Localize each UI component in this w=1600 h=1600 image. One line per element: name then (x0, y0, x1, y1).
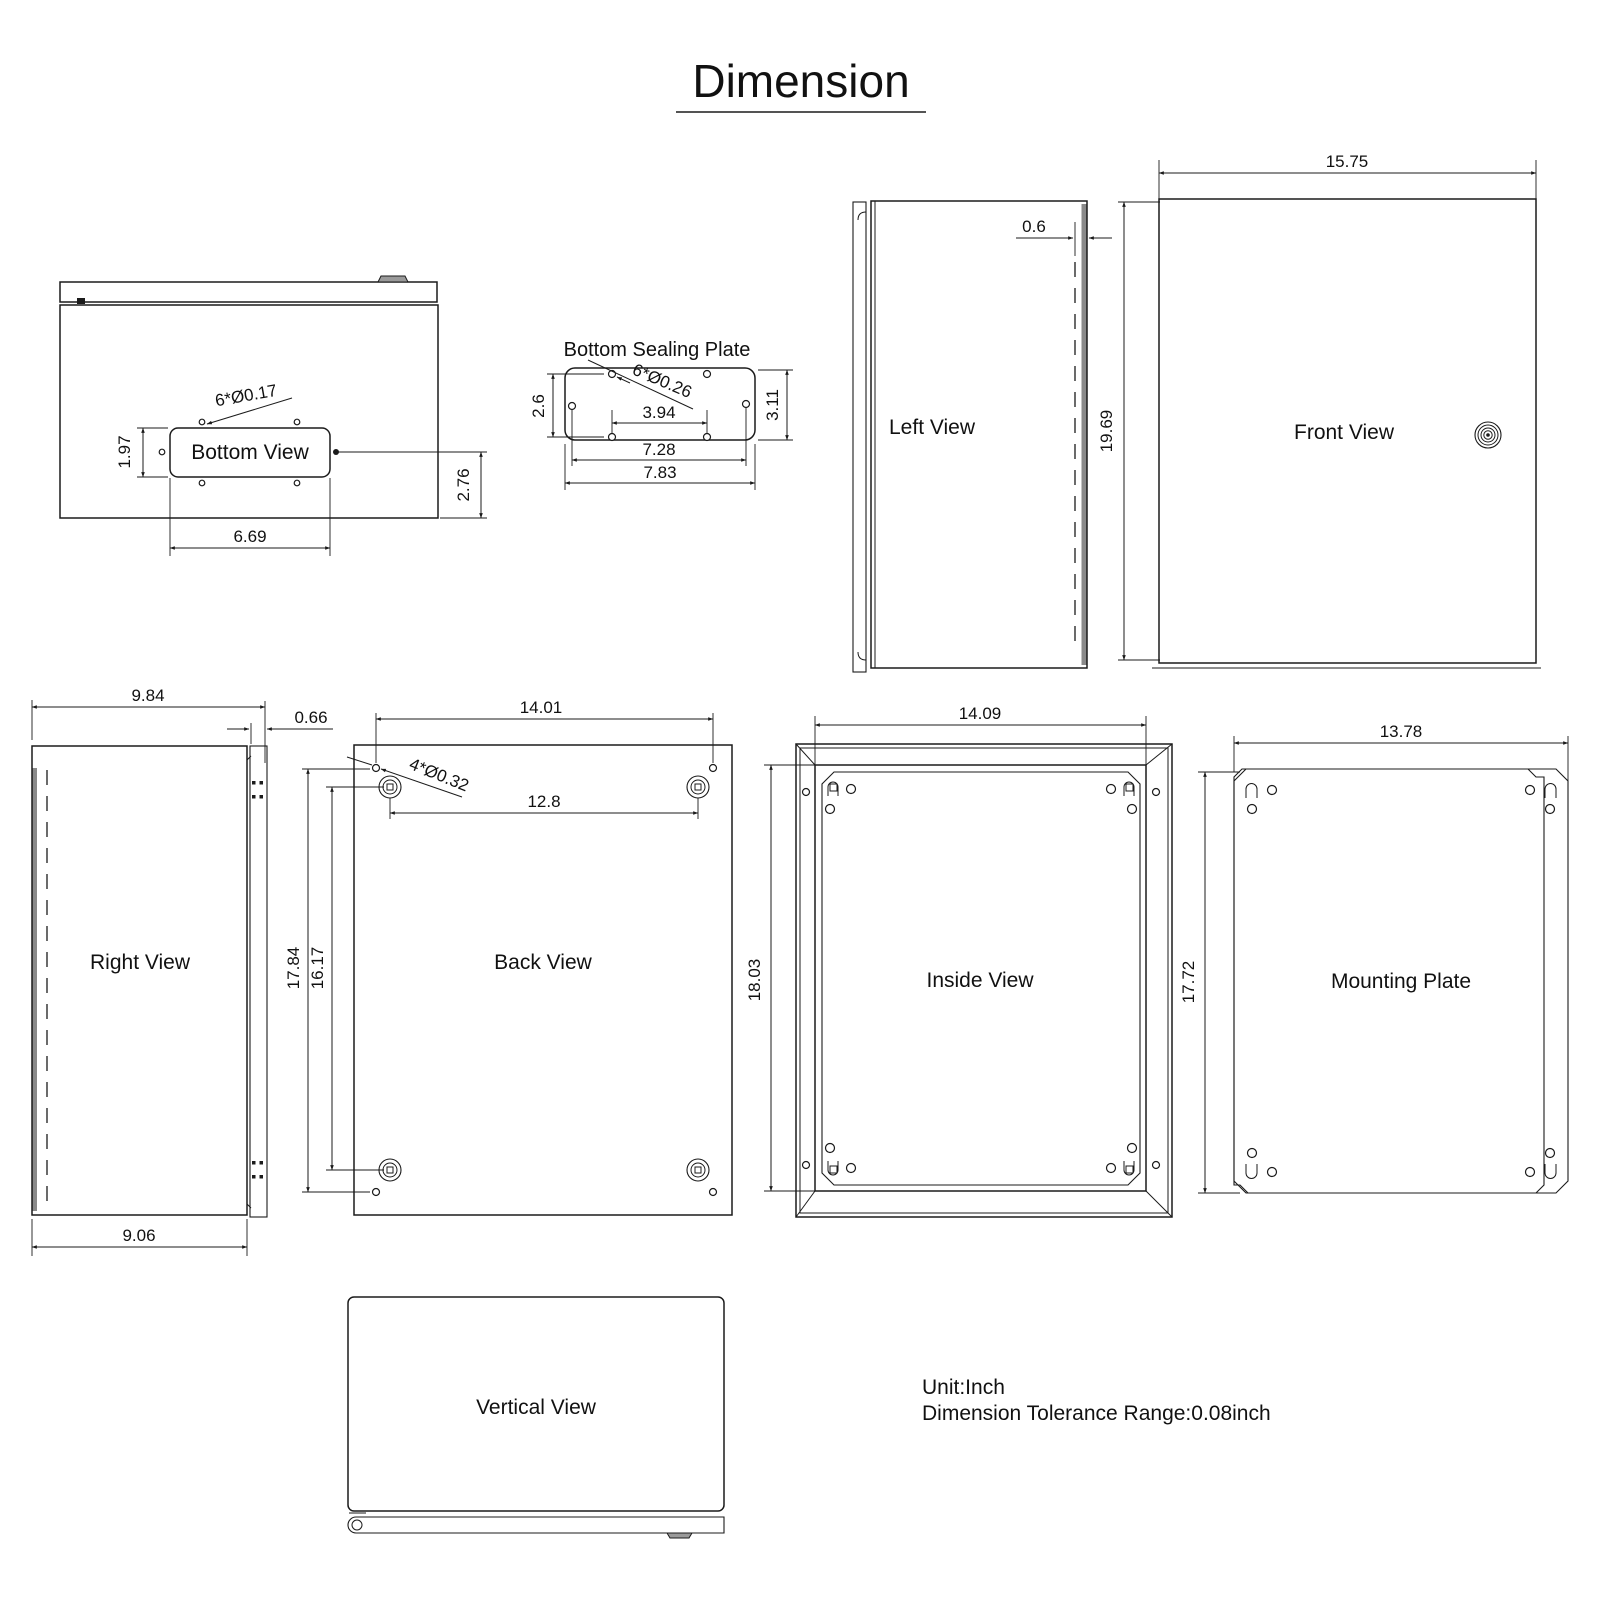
hinge-nub-icon (77, 298, 85, 304)
bottom-view-label: Bottom View (191, 441, 309, 464)
hole-callout-text: 6*Ø0.26 (630, 360, 695, 402)
dim-inner-hole-span: 3.94 (612, 403, 707, 433)
dim-body-depth: 9.06 (32, 1219, 247, 1256)
dim-hole-callout: 6*Ø0.17 (207, 381, 292, 424)
left-view: Left View 0.6 (853, 201, 1112, 672)
bottom-sealing-plate-view: Bottom Sealing Plate 6*Ø0.26 2.6 3.11 (529, 339, 793, 490)
hole (710, 1189, 717, 1196)
dim-text: 19.69 (1097, 410, 1116, 453)
hole (199, 419, 205, 425)
unit-note: Unit:Inch (922, 1376, 1005, 1399)
dim-text: 3.11 (763, 389, 782, 421)
dim-door-offset: 0.6 (1016, 217, 1112, 256)
dimension-drawing: Dimension Bottom View 6*Ø0.17 1.97 (0, 0, 1600, 1600)
back-view: Back View 14.01 4*Ø0.32 12.8 17.84 (284, 698, 732, 1215)
latch-bump-icon (667, 1533, 692, 1538)
bottom-view: Bottom View 6*Ø0.17 1.97 2.76 (60, 276, 487, 556)
hole (609, 434, 616, 441)
dim-text: 9.84 (131, 686, 164, 705)
dim-text: 15.75 (1326, 152, 1369, 171)
dim-boss-span-width: 12.8 (390, 792, 698, 819)
dim-text: 2.76 (454, 468, 473, 501)
dim-opening-height: 18.03 (745, 765, 822, 1191)
hole (294, 419, 300, 425)
dim-text: 0.66 (294, 708, 327, 727)
dim-depth: 2.76 (333, 449, 487, 518)
dim-text: 7.83 (643, 463, 676, 482)
dim-text: 1.97 (115, 435, 134, 468)
hole (373, 765, 380, 772)
hole (569, 403, 576, 410)
page-title: Dimension (692, 55, 909, 107)
dim-hole-rows-height: 2.6 (529, 374, 604, 437)
latch-bump-icon (378, 276, 408, 282)
right-view-label: Right View (90, 951, 191, 974)
dim-door-thickness: 0.66 (227, 708, 333, 744)
vertical-view: Vertical View (348, 1297, 724, 1538)
hinge-pin-icon (352, 1520, 362, 1530)
dimension-sheet: Dimension Bottom View 6*Ø0.17 1.97 (0, 0, 1600, 1600)
tolerance-note: Dimension Tolerance Range:0.08inch (922, 1402, 1271, 1425)
dim-text: 17.84 (284, 947, 303, 990)
dim-text: 0.6 (1022, 217, 1046, 236)
door-edge-strip (853, 202, 866, 672)
mounting-plate-label: Mounting Plate (1331, 970, 1471, 993)
vertical-view-label: Vertical View (476, 1396, 597, 1419)
inside-view: Inside View 14.09 18.03 (745, 704, 1172, 1217)
front-view-label: Front View (1294, 421, 1395, 444)
dim-height: 19.69 (1097, 202, 1160, 660)
dim-text: 2.6 (529, 394, 548, 418)
hole (294, 480, 300, 486)
hole (704, 434, 711, 441)
hole (704, 371, 711, 378)
dim-text: 7.28 (642, 440, 675, 459)
dim-width: 15.75 (1159, 152, 1536, 250)
dim-text: 6.69 (233, 527, 266, 546)
bottom-view-lid (60, 282, 437, 302)
mounting-plate-view: Mounting Plate 13.78 17.72 (1179, 722, 1568, 1193)
hole (710, 765, 717, 772)
hole (373, 1189, 380, 1196)
back-view-label: Back View (494, 951, 592, 974)
hole-callout-text: 6*Ø0.17 (214, 381, 279, 411)
mounting-boss-icons (379, 776, 709, 1181)
dim-text: 9.06 (122, 1226, 155, 1245)
dim-text: 14.01 (520, 698, 563, 717)
dim-text: 18.03 (745, 959, 764, 1002)
dim-hole-span-height: 17.84 (284, 769, 370, 1192)
right-view-body (32, 746, 247, 1215)
dim-hole-span-width: 14.01 (376, 698, 713, 763)
sheet-title: Dimension (676, 55, 926, 112)
bottom-sealing-plate-heading: Bottom Sealing Plate (564, 339, 751, 361)
inside-view-label: Inside View (926, 969, 1034, 992)
left-view-label: Left View (889, 416, 976, 439)
dim-text: 16.17 (308, 947, 327, 990)
dim-hole-callout: 4*Ø0.32 (347, 754, 472, 797)
hinge-hook-top (858, 212, 866, 220)
hole (159, 449, 165, 455)
door-edge-bar (348, 1517, 724, 1533)
dim-top-depth: 9.84 (32, 686, 265, 763)
dim-text: 14.09 (959, 704, 1002, 723)
back-view-body (354, 745, 732, 1215)
door-edge-strip (250, 746, 267, 1217)
dim-text: 17.72 (1179, 961, 1198, 1004)
lock-icon (1475, 422, 1501, 448)
hole (199, 480, 205, 486)
front-view: Front View 15.75 19.69 (1097, 152, 1541, 668)
miter-line (796, 744, 815, 765)
hinge-hook-bottom (858, 652, 866, 660)
dim-plate-height: 17.72 (1179, 772, 1240, 1193)
dim-cutout-width: 6.69 (170, 478, 330, 556)
hinge-screw-dots (252, 781, 263, 1179)
dim-plate-width: 13.78 (1234, 722, 1568, 860)
dim-boss-span-height: 16.17 (308, 787, 384, 1170)
notes: Unit:Inch Dimension Tolerance Range:0.08… (922, 1376, 1271, 1425)
dim-text: 12.8 (527, 792, 560, 811)
dim-text: 3.94 (642, 403, 675, 422)
hole (743, 401, 750, 408)
dim-text: 13.78 (1380, 722, 1423, 741)
dim-plate-height: 3.11 (758, 370, 793, 440)
